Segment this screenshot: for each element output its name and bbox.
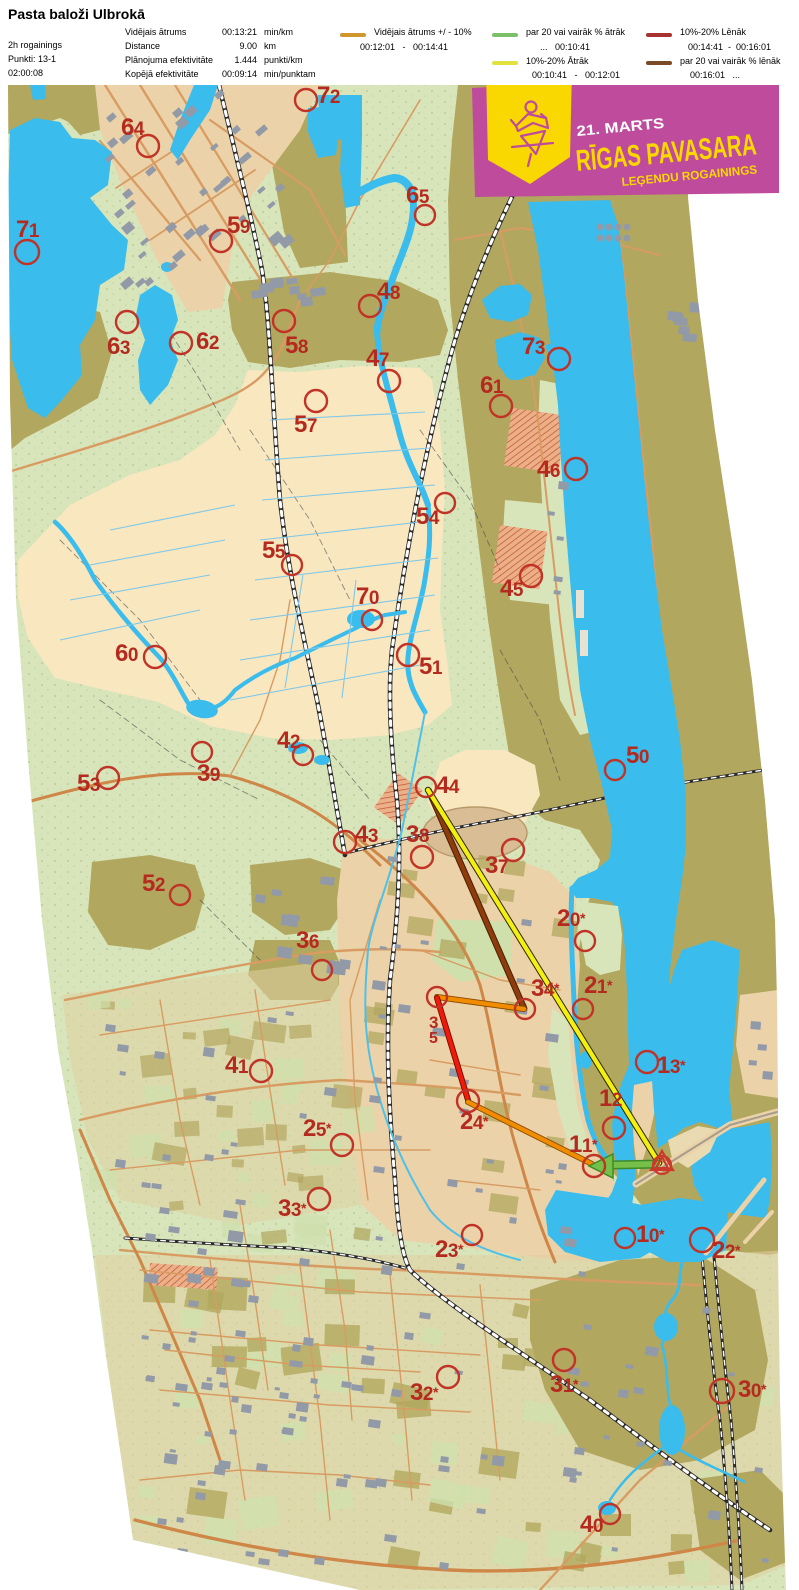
svg-text:43: 43	[355, 821, 378, 848]
svg-text:47: 47	[366, 345, 389, 372]
svg-text:40: 40	[580, 1511, 603, 1538]
svg-text:44: 44	[436, 772, 460, 799]
svg-text:48: 48	[377, 278, 400, 305]
svg-text:58: 58	[285, 332, 308, 359]
svg-text:62: 62	[196, 328, 219, 355]
svg-text:38: 38	[406, 821, 429, 848]
svg-text:63: 63	[107, 333, 130, 360]
svg-text:12: 12	[599, 1085, 622, 1112]
svg-text:61: 61	[480, 372, 504, 399]
svg-text:71: 71	[16, 216, 40, 243]
svg-text:72: 72	[317, 85, 340, 109]
svg-text:36: 36	[296, 927, 319, 954]
svg-text:45: 45	[500, 575, 524, 602]
svg-text:42: 42	[277, 727, 300, 754]
svg-text:54: 54	[416, 503, 440, 530]
svg-text:65: 65	[406, 182, 430, 209]
svg-text:53: 53	[77, 770, 100, 797]
svg-text:70: 70	[356, 583, 379, 610]
svg-text:39: 39	[197, 760, 220, 787]
svg-text:51: 51	[419, 653, 443, 680]
svg-text:50: 50	[626, 742, 649, 769]
svg-text:60: 60	[115, 640, 138, 667]
svg-text:64: 64	[121, 114, 145, 141]
svg-text:59: 59	[227, 212, 250, 239]
svg-text:41: 41	[225, 1052, 249, 1079]
svg-text:55: 55	[262, 537, 286, 564]
svg-text:37: 37	[485, 852, 508, 879]
svg-text:52: 52	[142, 870, 165, 897]
svg-text:5: 5	[429, 1030, 438, 1047]
svg-text:57: 57	[294, 411, 317, 438]
svg-text:46: 46	[537, 456, 560, 483]
svg-text:73: 73	[522, 333, 545, 360]
